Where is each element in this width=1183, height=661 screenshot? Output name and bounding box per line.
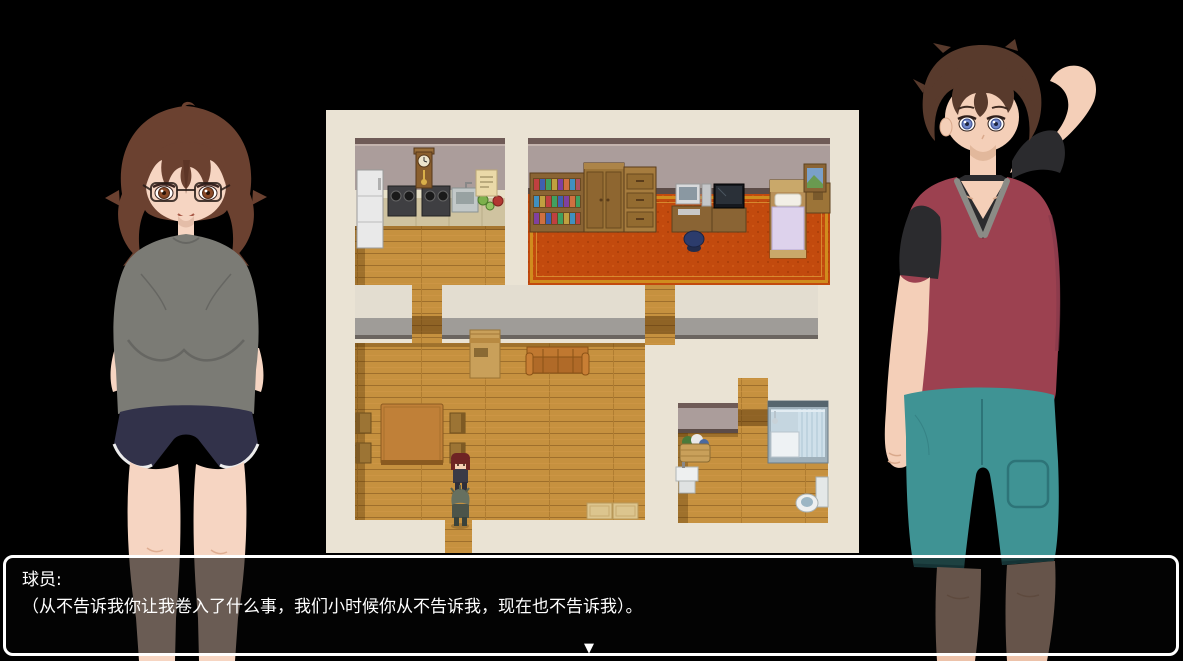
grandfather-clock (414, 148, 434, 188)
living-room (355, 330, 645, 529)
bathroom-sink (676, 462, 698, 493)
vegetables (486, 202, 494, 210)
doormats (587, 503, 638, 519)
red-dish (493, 196, 503, 206)
house-map (326, 110, 859, 553)
cardboard-box (470, 330, 500, 378)
dialogue-speaker: 球员: (22, 567, 1160, 594)
male-left-sleeve (899, 206, 941, 279)
bed (770, 180, 806, 258)
male-ear (940, 118, 952, 136)
bookshelf (530, 173, 584, 232)
female-shorts (114, 405, 258, 469)
tv-stand (712, 184, 746, 232)
kitchen-room (355, 138, 505, 285)
wall-picture (804, 164, 826, 192)
continue-indicator[interactable]: ▼ (584, 642, 594, 655)
couch (526, 347, 589, 375)
computer-desk (672, 184, 712, 232)
dresser (624, 167, 656, 232)
dialogue-text: （从不告诉我你让我卷入了什么事，我们小时候你从不告诉我，现在也不告诉我）。 (22, 594, 1160, 621)
bathtub (768, 401, 828, 463)
game-screen: 球员: （从不告诉我你让我卷入了什么事，我们小时候你从不告诉我，现在也不告诉我）… (0, 0, 1183, 661)
bedroom-room (528, 138, 830, 285)
dining-table (381, 404, 443, 465)
female-shirt (113, 234, 258, 414)
wall-note (476, 170, 497, 196)
wardrobe (584, 163, 624, 232)
male-raised-sleeve (1012, 130, 1065, 179)
